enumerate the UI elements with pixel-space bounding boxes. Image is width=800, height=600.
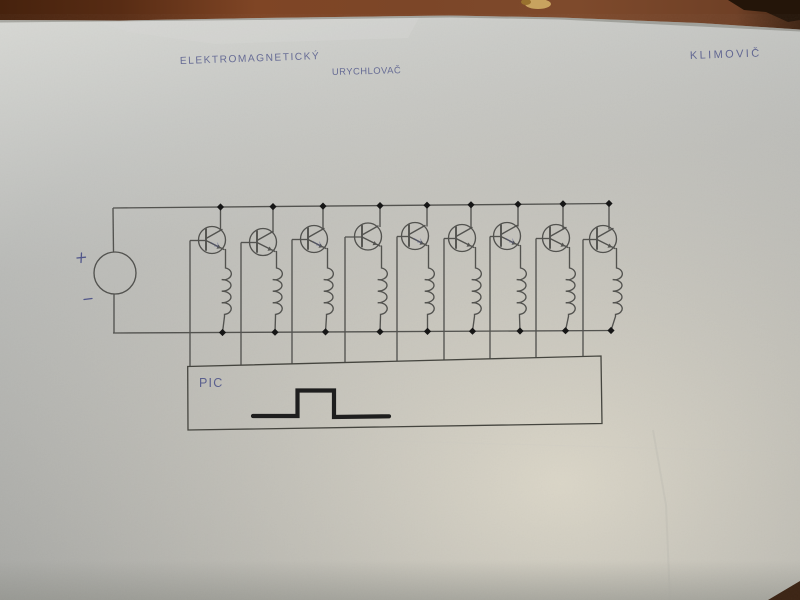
svg-text:PIC: PIC (199, 376, 223, 390)
svg-text:KLIMOVIČ: KLIMOVIČ (690, 47, 762, 62)
svg-text:URYCHLOVAČ: URYCHLOVAČ (332, 64, 402, 77)
